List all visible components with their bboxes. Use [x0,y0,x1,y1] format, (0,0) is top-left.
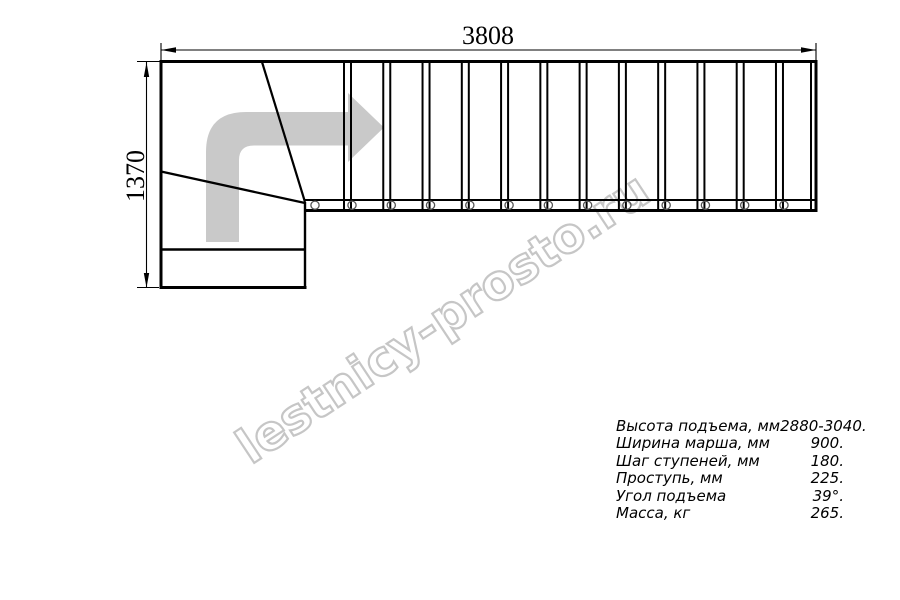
baluster-circle [701,201,709,209]
height-dimension-label: 1370 [121,150,150,202]
baluster-circle [311,201,319,209]
spec-value: 900. [811,434,844,452]
spec-row: Ширина марша, мм900. [616,434,844,451]
spec-row: Масса, кг265. [616,504,844,521]
spec-value: 2880-3040. [780,417,867,435]
spec-label: Шаг ступеней, мм [616,452,760,470]
spec-table: Высота подъема, мм2880-3040.Ширина марша… [616,417,844,521]
spec-row: Угол подъема39°. [616,487,844,504]
baluster-circle [741,201,749,209]
baluster-circle [662,201,670,209]
width-dimension-label: 3808 [462,21,514,50]
spec-label: Масса, кг [616,504,690,522]
spec-value: 265. [811,504,844,522]
tread-lines [344,62,783,211]
spec-row: Высота подъема, мм2880-3040. [616,417,844,434]
spec-label: Угол подъема [616,487,726,505]
spec-row: Проступь, мм225. [616,469,844,486]
spec-label: Проступь, мм [616,469,723,487]
spec-label: Ширина марша, мм [616,434,770,452]
spec-label: Высота подъема, мм [616,417,780,435]
spec-value: 180. [811,452,844,470]
spec-value: 225. [811,469,844,487]
dimension-arrowheads [144,47,816,287]
spec-value: 39°. [813,487,844,505]
spec-row: Шаг ступеней, мм180. [616,452,844,469]
staircase-drawing-page: lestnicy-prosto.ru [0,0,900,600]
